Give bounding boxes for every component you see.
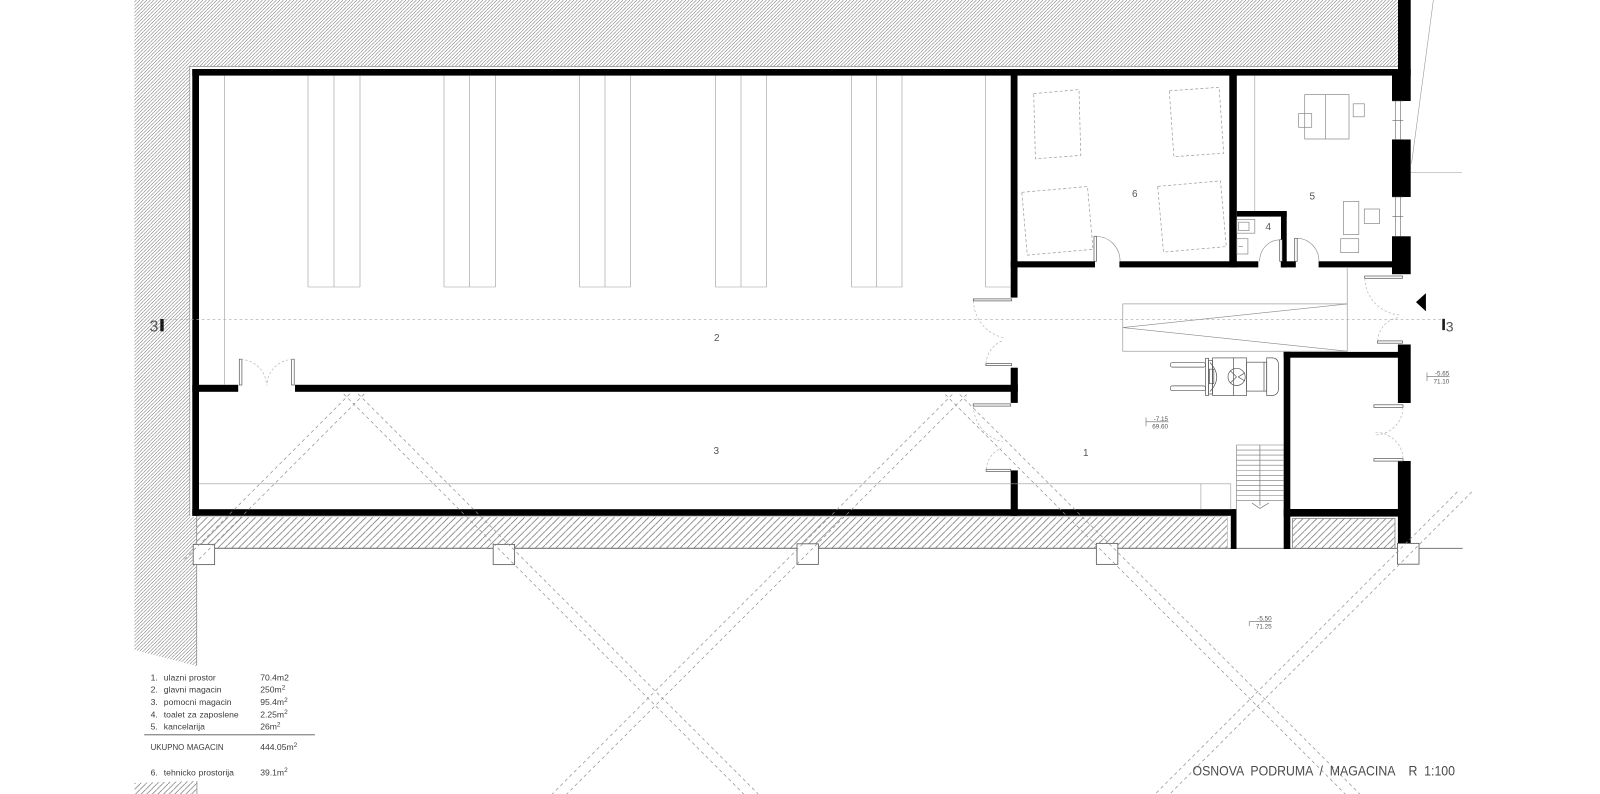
svg-text:69.60: 69.60: [1152, 424, 1168, 431]
svg-text:glavni magacin: glavni magacin: [164, 685, 222, 695]
svg-text:5.: 5.: [151, 722, 158, 732]
svg-text:6.: 6.: [151, 767, 158, 777]
svg-text:39.1m2: 39.1m2: [260, 767, 288, 777]
svg-text:6: 6: [1132, 189, 1138, 200]
svg-text:-7.15: -7.15: [1154, 416, 1169, 423]
svg-text:3: 3: [714, 446, 720, 457]
svg-text:5: 5: [1310, 192, 1316, 203]
svg-text:71.10: 71.10: [1434, 378, 1450, 385]
svg-text:4: 4: [1266, 222, 1272, 233]
svg-text:2.: 2.: [151, 685, 158, 695]
svg-text:OSNOVA PODRUMA / MAGACINA: OSNOVA PODRUMA / MAGACINA R 1:100: [1193, 763, 1456, 779]
svg-text:3: 3: [150, 319, 159, 336]
svg-text:2.25m2: 2.25m2: [260, 709, 288, 719]
svg-text:1: 1: [1083, 448, 1089, 459]
svg-text:pomocni magacin: pomocni magacin: [164, 697, 232, 707]
svg-text:3: 3: [1446, 318, 1454, 334]
svg-text:444.05m2: 444.05m2: [260, 742, 297, 752]
svg-text:ulazni prostor: ulazni prostor: [164, 672, 216, 682]
svg-text:-5.50: -5.50: [1257, 616, 1272, 623]
svg-text:2: 2: [714, 333, 720, 344]
svg-text:toalet za zaposlene: toalet za zaposlene: [164, 709, 239, 719]
svg-text:4.: 4.: [151, 709, 158, 719]
svg-text:70.4m2: 70.4m2: [260, 672, 289, 682]
svg-text:kancelarija: kancelarija: [164, 722, 205, 732]
svg-text:1.: 1.: [151, 672, 158, 682]
svg-text:UKUPNO MAGACIN: UKUPNO MAGACIN: [151, 742, 224, 752]
svg-text:71.25: 71.25: [1256, 623, 1272, 630]
svg-text:-5.65: -5.65: [1435, 371, 1450, 378]
svg-text:tehnicko prostorija: tehnicko prostorija: [164, 767, 234, 777]
svg-text:3.: 3.: [151, 697, 158, 707]
svg-text:95.4m2: 95.4m2: [260, 697, 288, 707]
